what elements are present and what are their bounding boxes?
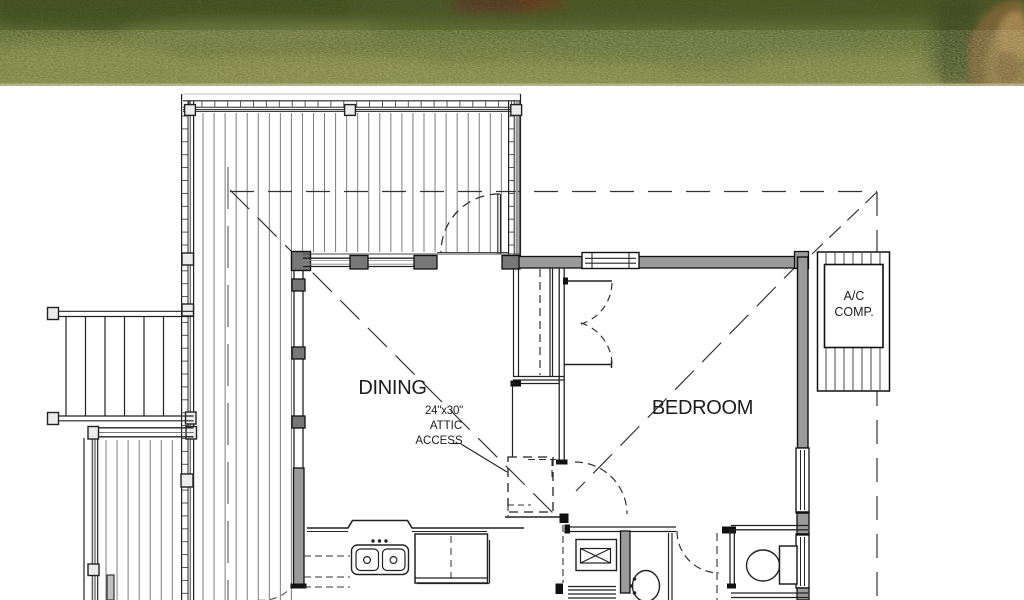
svg-text:COMP.: COMP.: [834, 305, 873, 319]
svg-text:DINING: DINING: [358, 377, 426, 399]
svg-text:24"x30": 24"x30": [425, 405, 463, 417]
svg-text:ACCESS: ACCESS: [415, 435, 463, 447]
svg-text:ATTIC: ATTIC: [430, 420, 462, 432]
svg-text:BEDROOM: BEDROOM: [652, 397, 753, 419]
svg-text:A/C: A/C: [844, 289, 865, 303]
